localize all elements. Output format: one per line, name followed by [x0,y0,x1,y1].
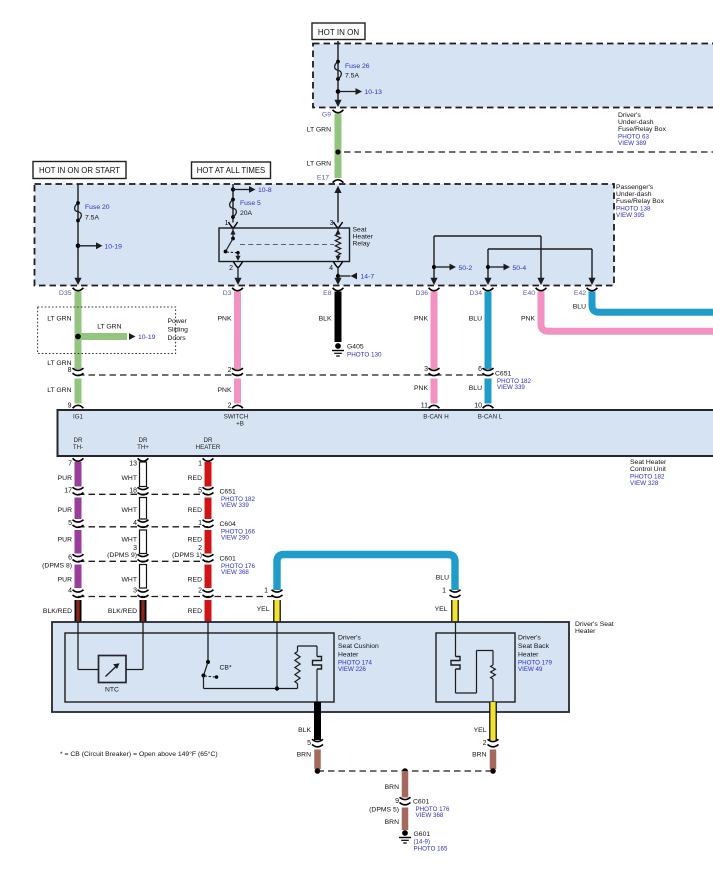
svg-text:50-4: 50-4 [513,265,527,272]
svg-text:G9: G9 [322,112,331,119]
svg-text:BRN: BRN [472,752,486,759]
svg-text:Seat Back: Seat Back [518,643,550,650]
svg-text:E40: E40 [523,290,535,297]
svg-text:C651: C651 [495,371,511,378]
svg-text:Under-dash: Under-dash [616,191,652,198]
svg-text:IG1: IG1 [73,414,84,421]
svg-text:(14-9): (14-9) [414,839,431,846]
svg-text:7: 7 [68,461,72,468]
svg-text:E8: E8 [323,290,332,297]
svg-text:VIEW 339: VIEW 339 [497,384,525,391]
svg-text:DR: DR [204,437,213,444]
svg-text:6: 6 [478,366,482,373]
svg-text:3: 3 [133,588,137,595]
svg-text:LT GRN: LT GRN [47,360,71,367]
svg-text:Fuse 26: Fuse 26 [345,63,370,70]
svg-text:7.5A: 7.5A [345,73,359,80]
svg-text:2: 2 [198,545,202,552]
svg-text:1: 1 [198,461,202,468]
svg-text:Heater: Heater [575,628,596,635]
svg-text:2: 2 [483,740,487,747]
svg-text:5: 5 [307,740,311,747]
svg-text:(DPMS 5): (DPMS 5) [369,807,399,814]
svg-text:LT GRN: LT GRN [307,127,331,134]
svg-text:C601: C601 [220,556,236,563]
svg-text:Heater: Heater [338,652,359,659]
svg-text:(DPMS 8): (DPMS 8) [42,563,72,570]
svg-text:Under-dash: Under-dash [618,119,654,126]
svg-text:PHOTO 165: PHOTO 165 [414,846,448,853]
svg-text:G601: G601 [414,831,431,838]
svg-text:4: 4 [329,265,333,272]
svg-text:B-CAN L: B-CAN L [478,414,503,421]
svg-text:C601: C601 [413,799,429,806]
svg-text:PNK: PNK [218,387,232,394]
svg-text:VIEW 49: VIEW 49 [518,666,543,673]
svg-text:RED: RED [188,577,202,584]
svg-text:Driver's: Driver's [618,112,641,119]
svg-text:C651: C651 [220,489,236,496]
svg-text:BLU: BLU [573,304,586,311]
svg-text:VIEW 389: VIEW 389 [618,140,647,147]
svg-text:Fuse 20: Fuse 20 [85,204,110,211]
svg-text:VIEW 339: VIEW 339 [221,502,249,509]
svg-text:VIEW 290: VIEW 290 [221,535,249,542]
svg-text:WHT: WHT [122,537,137,544]
svg-text:E17: E17 [317,175,329,182]
svg-text:Passenger's: Passenger's [616,184,654,191]
svg-text:VIEW 328: VIEW 328 [630,480,659,487]
svg-text:LT GRN: LT GRN [47,316,71,323]
svg-text:Doors: Doors [168,335,187,342]
svg-text:D34: D34 [470,290,483,297]
svg-text:C604: C604 [220,521,236,528]
svg-text:PUR: PUR [58,507,72,514]
svg-text:5: 5 [198,488,202,495]
svg-text:4: 4 [68,588,72,595]
svg-text:BLU: BLU [436,575,449,582]
svg-text:G405: G405 [347,344,364,351]
svg-text:(DPMS 9): (DPMS 9) [107,552,137,559]
svg-text:8: 8 [68,367,72,374]
svg-text:Fuse/Relay Box: Fuse/Relay Box [616,198,665,205]
svg-text:YEL: YEL [474,727,487,734]
svg-text:DR: DR [74,437,83,444]
svg-text:DR: DR [139,437,148,444]
svg-text:HOT AT ALL TIMES: HOT AT ALL TIMES [197,166,265,175]
svg-text:13: 13 [129,461,137,468]
svg-text:4: 4 [133,520,137,527]
svg-text:20A: 20A [240,210,253,217]
svg-text:D36: D36 [416,290,429,297]
svg-text:WHT: WHT [122,577,137,584]
svg-text:PHOTO 130: PHOTO 130 [347,352,382,359]
svg-text:2: 2 [198,588,202,595]
svg-text:BRN: BRN [297,752,311,759]
svg-text:Seat: Seat [353,227,367,234]
svg-text:PUR: PUR [58,577,72,584]
svg-text:D35: D35 [59,290,72,297]
svg-text:E42: E42 [574,290,586,297]
svg-text:PNK: PNK [414,316,428,323]
svg-text:TH+: TH+ [137,444,149,451]
svg-text:10-13: 10-13 [365,89,383,96]
svg-text:YEL: YEL [257,606,270,613]
svg-text:BLU: BLU [469,316,482,323]
svg-text:PNK: PNK [414,385,428,392]
svg-text:Control Unit: Control Unit [630,466,666,473]
svg-text:Seat Heater: Seat Heater [630,459,667,466]
svg-text:17: 17 [64,488,72,495]
svg-text:(DPMS 1): (DPMS 1) [172,552,202,559]
svg-text:3: 3 [133,545,137,552]
svg-text:BLK: BLK [298,727,311,734]
svg-text:HEATER: HEATER [196,444,221,451]
svg-text:Seat Cushion: Seat Cushion [338,643,379,650]
svg-text:VIEW 395: VIEW 395 [616,212,645,219]
svg-text:6: 6 [68,555,72,562]
svg-text:WHT: WHT [122,507,137,514]
svg-text:VIEW 368: VIEW 368 [416,812,444,819]
svg-text:LT GRN: LT GRN [307,161,331,168]
svg-text:WHT: WHT [122,475,137,482]
svg-text:1: 1 [198,520,202,527]
svg-text:LT GRN: LT GRN [97,324,121,331]
svg-text:BLK/RED: BLK/RED [108,608,137,615]
svg-text:PNK: PNK [218,316,232,323]
svg-text:3: 3 [424,366,428,373]
svg-text:BLK/RED: BLK/RED [43,608,72,615]
svg-text:9: 9 [395,798,399,805]
svg-text:RED: RED [188,537,202,544]
svg-text:Heater: Heater [518,652,539,659]
svg-text:2: 2 [228,403,232,410]
svg-text:BLK: BLK [319,316,332,323]
svg-text:1: 1 [264,588,268,595]
svg-text:TH-: TH- [73,444,83,451]
svg-text:10-19: 10-19 [105,244,123,251]
svg-text:+B: +B [236,421,244,428]
svg-text:SWITCH: SWITCH [224,414,248,421]
svg-text:HOT IN ON OR START: HOT IN ON OR START [39,166,120,175]
svg-text:5: 5 [68,520,72,527]
svg-text:B-CAN H: B-CAN H [423,414,448,421]
svg-text:NTC: NTC [105,687,119,694]
svg-text:11: 11 [421,403,428,410]
svg-text:7.5A: 7.5A [85,215,99,222]
svg-text:HOT IN ON: HOT IN ON [318,28,359,37]
svg-text:Driver's: Driver's [338,635,361,642]
svg-text:14-7: 14-7 [361,274,375,281]
svg-text:BRN: BRN [385,784,399,791]
svg-text:2: 2 [228,367,232,374]
svg-text:PNK: PNK [521,316,535,323]
svg-text:Heater: Heater [353,234,374,241]
svg-text:2: 2 [229,265,233,272]
svg-text:Relay: Relay [353,241,371,248]
svg-text:Power: Power [168,318,188,325]
svg-text:PUR: PUR [58,475,72,482]
svg-text:Fuse 5: Fuse 5 [240,200,261,207]
svg-text:CB*: CB* [220,665,232,672]
svg-text:LT GRN: LT GRN [47,387,71,394]
svg-text:Driver's Seat: Driver's Seat [575,621,614,628]
svg-text:BLU: BLU [469,385,482,392]
svg-text:50-2: 50-2 [459,265,473,272]
svg-text:10-8: 10-8 [258,187,272,194]
svg-text:VIEW 226: VIEW 226 [338,666,366,673]
svg-text:D3: D3 [223,290,232,297]
svg-text:9: 9 [68,403,72,410]
svg-text:RED: RED [188,475,202,482]
svg-text:1: 1 [442,588,446,595]
svg-text:3: 3 [330,220,334,227]
svg-text:BRN: BRN [385,819,399,826]
svg-text:18: 18 [129,488,137,495]
svg-text:RED: RED [188,608,202,615]
svg-text:RED: RED [188,507,202,514]
svg-text:Fuse/Relay Box: Fuse/Relay Box [618,126,667,133]
svg-text:Sliding: Sliding [168,327,189,334]
svg-text:YEL: YEL [435,606,448,613]
svg-text:PUR: PUR [58,537,72,544]
svg-text:10-19: 10-19 [138,334,156,341]
svg-text:Driver's: Driver's [518,635,541,642]
svg-text:10: 10 [474,403,482,410]
svg-text:* = CB (Circuit Breaker) = O: * = CB (Circuit Breaker) = Open above 14… [60,750,218,758]
svg-text:1: 1 [225,220,229,227]
svg-text:VIEW 368: VIEW 368 [221,569,249,576]
